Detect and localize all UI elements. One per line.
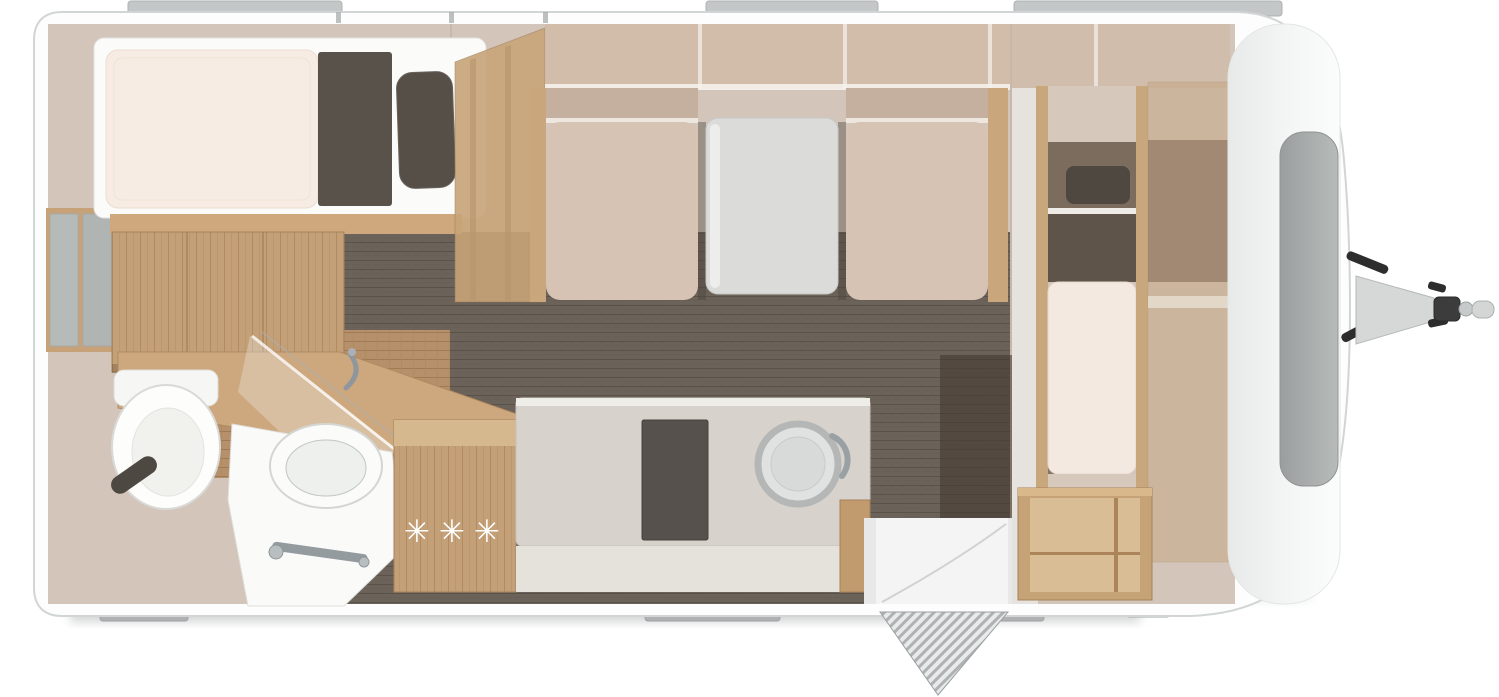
tall-cabinet-grain	[470, 58, 476, 300]
front-wardrobe-divider	[1114, 498, 1118, 592]
bench-gap-left	[698, 122, 706, 300]
bed-duvet-dark	[318, 52, 392, 206]
hitch-ball-joint	[1459, 302, 1473, 316]
cooktop	[642, 420, 708, 540]
dinette	[530, 24, 1010, 302]
bath-faucet-knob2	[359, 557, 369, 567]
tall-cabinet-grain	[505, 45, 511, 300]
wardrobe-top-ledge	[110, 214, 462, 234]
bench-left-backrest	[546, 88, 698, 122]
bath-faucet-knob	[269, 545, 283, 559]
locker-divider	[988, 24, 992, 88]
door-jamb-left	[864, 518, 876, 604]
dinette-table	[706, 118, 838, 294]
tow-hitch	[1340, 250, 1494, 344]
bench-right-seat	[846, 122, 988, 300]
caravan-floorplan: ✳✳✳	[0, 0, 1499, 697]
bed-mattress	[106, 50, 318, 208]
upper-bunk-shelf	[1148, 296, 1230, 308]
hitch-coupling	[1434, 297, 1460, 321]
kitchen-counter-edge	[516, 398, 870, 406]
hitch-ball-socket	[1472, 301, 1494, 318]
floorplan-canvas: ✳✳✳	[0, 0, 1499, 697]
wardrobe-body	[112, 232, 344, 372]
front-nose	[1228, 24, 1340, 604]
rear-bed	[94, 38, 486, 218]
locker-divider	[698, 24, 702, 88]
front-wardrobe-top	[1018, 488, 1152, 496]
door-threshold	[870, 518, 1014, 604]
hitch-drawbar	[1356, 276, 1434, 344]
bench-side-panel-left	[530, 88, 546, 302]
stove-burners: ✳✳✳	[404, 514, 509, 550]
kitchen-block-top	[394, 420, 516, 446]
kitchen: ✳✳✳	[394, 398, 870, 592]
kitchen-faucet-base	[348, 348, 356, 356]
bunk-trim	[1048, 208, 1136, 214]
bunk-locker-divider	[1094, 24, 1098, 88]
bench-left-seat	[546, 122, 698, 300]
kitchen-counter-front	[516, 546, 870, 592]
front-wardrobe	[1018, 488, 1152, 600]
kitchen-sink-inner	[771, 437, 825, 491]
bench-gap-right	[838, 122, 846, 300]
wardrobe-divider	[186, 232, 188, 372]
rear-window	[46, 208, 120, 352]
bunk-overhead-lockers	[1012, 24, 1230, 88]
table-highlight	[710, 124, 720, 288]
upper-bunk-bedding	[1148, 140, 1230, 282]
bath-sink-inner	[286, 440, 366, 496]
hitch-handle-top	[1345, 250, 1389, 275]
bunk-bedding-dark	[1048, 214, 1136, 282]
front-window	[1280, 132, 1338, 486]
overhead-lockers	[545, 24, 1010, 88]
front-wardrobe-inner	[1030, 498, 1140, 592]
hitch-lever-top	[1427, 281, 1446, 293]
bunk-pillow	[1066, 166, 1130, 204]
bunk-head-shelf	[1048, 86, 1136, 142]
locker-divider	[843, 24, 847, 88]
door-leaf-open	[880, 612, 1008, 695]
bench-side-panel-right	[988, 88, 1008, 302]
front-wardrobe-shelf	[1030, 552, 1140, 555]
rear-window-pane-left	[50, 214, 78, 346]
bench-right-backrest	[846, 88, 988, 122]
toilet-seat	[132, 408, 204, 496]
bunk-lower-mattress	[1048, 282, 1136, 474]
bed-pillow	[396, 71, 456, 189]
